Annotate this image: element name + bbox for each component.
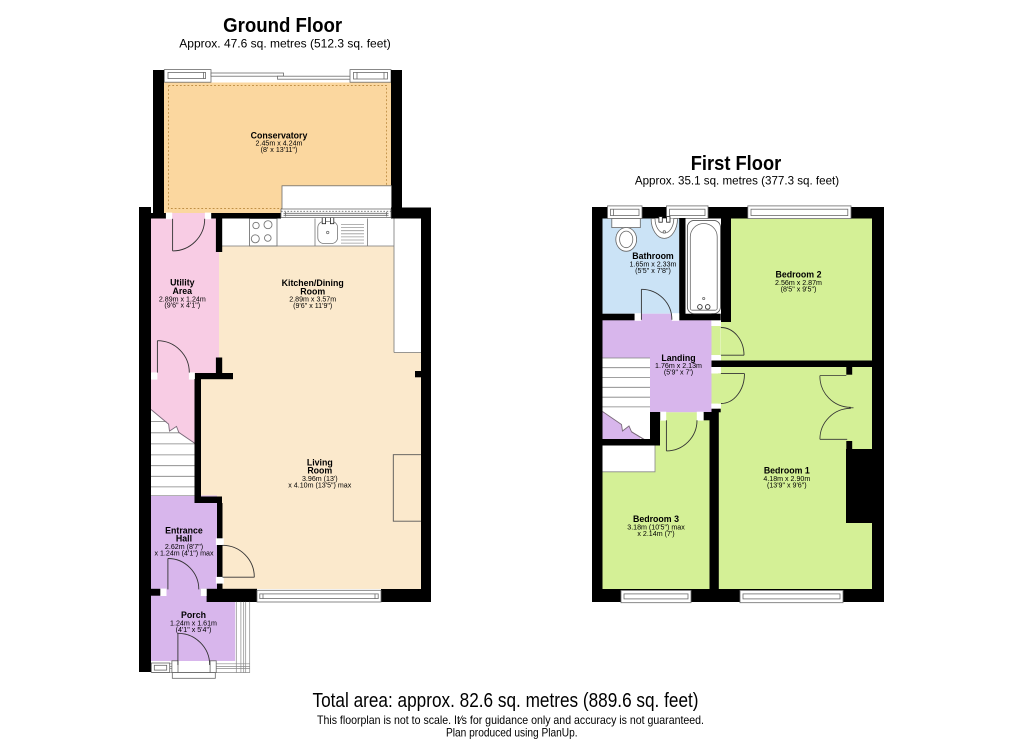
svg-text:x 1.24m (4'1") max: x 1.24m (4'1") max <box>154 550 214 558</box>
svg-text:(8' x 13'11"): (8' x 13'11") <box>261 146 298 154</box>
svg-text:Total area: approx. 82.6 sq. m: Total area: approx. 82.6 sq. metres (889… <box>313 689 699 712</box>
svg-text:(4'1" x 5'4"): (4'1" x 5'4") <box>176 626 212 634</box>
svg-text:(13'9" x 9'6"): (13'9" x 9'6") <box>767 481 807 489</box>
svg-text:(9'6" x 11'9"): (9'6" x 11'9") <box>293 302 332 310</box>
svg-text:Plan produced using PlanUp.: Plan produced using PlanUp. <box>446 726 578 740</box>
svg-text:Approx. 47.6 sq. metres (512.3: Approx. 47.6 sq. metres (512.3 sq. feet) <box>179 36 390 50</box>
svg-text:Hall: Hall <box>176 534 192 544</box>
svg-text:(8'5" x 9'5"): (8'5" x 9'5") <box>781 285 817 293</box>
svg-text:Approx. 35.1 sq. metres (377.3: Approx. 35.1 sq. metres (377.3 sq. feet) <box>635 175 839 188</box>
svg-text:Room: Room <box>307 466 332 476</box>
svg-text:(5'9" x 7'): (5'9" x 7') <box>664 368 693 376</box>
svg-text:Ground Floor: Ground Floor <box>223 15 342 37</box>
svg-text:Bedroom 2: Bedroom 2 <box>776 270 822 280</box>
svg-text:(5'5" x 7'8"): (5'5" x 7'8") <box>635 267 671 275</box>
svg-text:x 4.10m (13'5") max: x 4.10m (13'5") max <box>288 482 351 490</box>
svg-text:Area: Area <box>173 286 193 296</box>
svg-text:First Floor: First Floor <box>691 153 782 175</box>
svg-text:(9'6" x 4'1"): (9'6" x 4'1") <box>164 302 200 310</box>
svg-text:x 2.14m (7'): x 2.14m (7') <box>637 530 674 538</box>
